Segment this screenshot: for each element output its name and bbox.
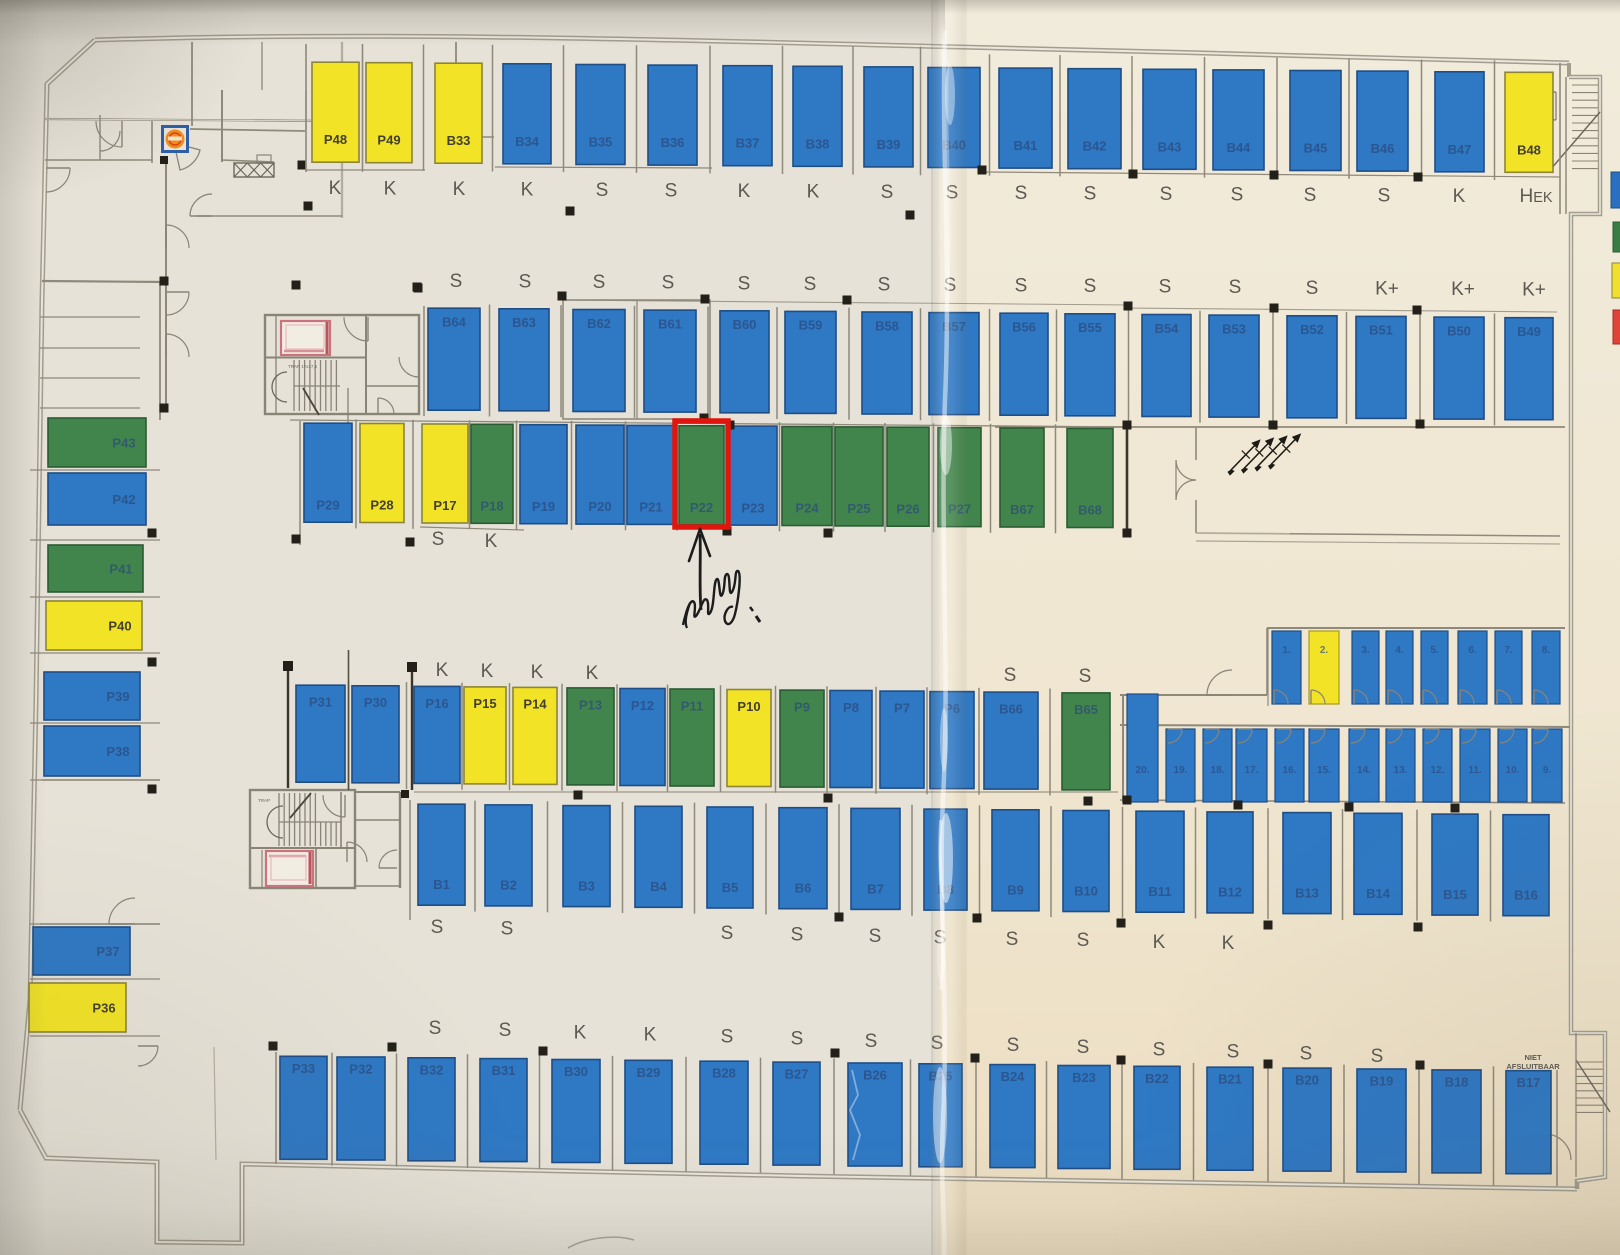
svg-text:B49: B49 xyxy=(1517,324,1541,339)
svg-text:P31: P31 xyxy=(309,695,332,710)
svg-text:K: K xyxy=(481,661,494,682)
svg-text:P14: P14 xyxy=(523,697,547,712)
svg-text:B43: B43 xyxy=(1158,139,1182,154)
svg-text:P19: P19 xyxy=(532,499,555,514)
svg-text:P17: P17 xyxy=(433,498,456,513)
svg-text:B68: B68 xyxy=(1078,503,1102,518)
svg-text:B3: B3 xyxy=(578,879,595,894)
svg-text:S: S xyxy=(738,273,751,294)
svg-text:B48: B48 xyxy=(1517,142,1541,157)
svg-text:B6: B6 xyxy=(795,881,812,896)
svg-text:K: K xyxy=(521,179,534,200)
svg-text:S: S xyxy=(1006,929,1019,950)
svg-text:S: S xyxy=(665,180,678,201)
svg-text:P22: P22 xyxy=(690,500,713,515)
svg-text:P8: P8 xyxy=(843,700,859,715)
svg-text:B34: B34 xyxy=(515,134,540,149)
svg-text:B61: B61 xyxy=(658,317,682,332)
svg-text:S: S xyxy=(662,273,675,294)
svg-text:S: S xyxy=(865,1031,878,1052)
svg-text:K: K xyxy=(436,660,449,681)
svg-text:B44: B44 xyxy=(1227,140,1252,155)
svg-text:B33: B33 xyxy=(447,133,471,148)
svg-text:P18: P18 xyxy=(480,498,503,513)
svg-text:P12: P12 xyxy=(631,698,654,713)
svg-text:B59: B59 xyxy=(799,318,823,333)
svg-text:B38: B38 xyxy=(806,136,830,151)
svg-text:P42: P42 xyxy=(112,492,135,507)
svg-text:B62: B62 xyxy=(587,316,611,331)
svg-text:K: K xyxy=(329,178,342,199)
svg-text:B37: B37 xyxy=(736,136,760,151)
svg-text:1.: 1. xyxy=(1282,645,1291,656)
svg-text:S: S xyxy=(519,272,532,293)
svg-text:P30: P30 xyxy=(364,695,387,710)
svg-text:B63: B63 xyxy=(512,315,536,330)
svg-text:S: S xyxy=(721,1027,734,1048)
svg-text:P9: P9 xyxy=(794,699,810,714)
svg-text:K: K xyxy=(384,178,397,199)
svg-text:B47: B47 xyxy=(1448,142,1472,157)
svg-text:P40: P40 xyxy=(108,619,131,634)
svg-text:6.: 6. xyxy=(1468,645,1477,656)
svg-text:S: S xyxy=(881,182,894,203)
svg-text:B64: B64 xyxy=(442,315,467,330)
svg-text:K: K xyxy=(807,181,820,202)
svg-text:B66: B66 xyxy=(999,702,1023,717)
svg-text:P48: P48 xyxy=(324,132,347,147)
svg-text:B41: B41 xyxy=(1014,138,1038,153)
svg-text:S: S xyxy=(1084,276,1097,297)
svg-text:TRAP 17x17,5: TRAP 17x17,5 xyxy=(288,364,318,369)
svg-text:S: S xyxy=(1007,1035,1020,1056)
svg-text:B58: B58 xyxy=(875,318,899,333)
svg-text:8.: 8. xyxy=(1542,645,1551,656)
svg-text:P15: P15 xyxy=(473,696,496,711)
svg-text:S: S xyxy=(791,924,804,945)
svg-text:B65: B65 xyxy=(1074,702,1098,717)
svg-text:B36: B36 xyxy=(661,135,685,150)
svg-text:P11: P11 xyxy=(681,698,703,713)
svg-text:B23: B23 xyxy=(1072,1070,1096,1085)
svg-text:3.: 3. xyxy=(1361,645,1370,656)
svg-text:K: K xyxy=(531,662,544,683)
svg-text:HEK: HEK xyxy=(1519,186,1552,207)
svg-text:S: S xyxy=(432,529,445,550)
svg-text:B9: B9 xyxy=(1007,883,1024,898)
svg-text:S: S xyxy=(1015,183,1028,204)
svg-text:B28: B28 xyxy=(712,1066,736,1081)
svg-text:S: S xyxy=(1306,278,1319,299)
svg-text:P16: P16 xyxy=(425,696,448,711)
svg-text:P39: P39 xyxy=(106,689,129,704)
svg-text:S: S xyxy=(1077,1037,1090,1058)
svg-text:B67: B67 xyxy=(1010,502,1034,517)
svg-text:B54: B54 xyxy=(1155,321,1180,336)
svg-text:B7: B7 xyxy=(867,881,884,896)
svg-text:S: S xyxy=(878,274,891,295)
svg-text:P24: P24 xyxy=(795,501,819,516)
svg-text:S: S xyxy=(1004,665,1017,686)
svg-text:B42: B42 xyxy=(1083,139,1107,154)
svg-text:B29: B29 xyxy=(637,1065,661,1080)
svg-text:P25: P25 xyxy=(847,501,870,516)
svg-text:5.: 5. xyxy=(1430,645,1439,656)
svg-text:B35: B35 xyxy=(589,135,613,150)
svg-text:S: S xyxy=(721,923,734,944)
svg-text:B4: B4 xyxy=(650,879,667,894)
svg-text:B26: B26 xyxy=(863,1068,887,1083)
svg-text:S: S xyxy=(1231,184,1244,205)
svg-text:7.: 7. xyxy=(1504,645,1513,656)
svg-text:P13: P13 xyxy=(579,697,602,712)
svg-text:K: K xyxy=(485,531,498,552)
svg-text:B50: B50 xyxy=(1447,323,1471,338)
svg-text:B56: B56 xyxy=(1012,320,1036,335)
svg-text:B46: B46 xyxy=(1371,141,1395,156)
svg-text:P21: P21 xyxy=(639,500,662,515)
svg-text:S: S xyxy=(791,1029,804,1050)
svg-text:K: K xyxy=(453,179,466,200)
svg-text:S: S xyxy=(1229,277,1242,298)
svg-text:B24: B24 xyxy=(1001,1069,1026,1084)
svg-text:S: S xyxy=(1378,185,1391,206)
svg-text:P20: P20 xyxy=(588,499,611,514)
svg-text:P23: P23 xyxy=(741,500,764,515)
svg-text:B5: B5 xyxy=(722,880,739,895)
svg-text:P43: P43 xyxy=(112,436,135,451)
svg-text:K+: K+ xyxy=(1375,278,1399,299)
svg-text:P41: P41 xyxy=(109,562,132,577)
svg-text:S: S xyxy=(596,180,609,201)
svg-text:B10: B10 xyxy=(1074,883,1098,898)
svg-text:B27: B27 xyxy=(785,1067,809,1082)
svg-text:S: S xyxy=(1084,183,1097,204)
svg-text:P29: P29 xyxy=(316,497,339,512)
svg-text:B51: B51 xyxy=(1369,323,1393,338)
svg-text:S: S xyxy=(1159,277,1172,298)
svg-text:P28: P28 xyxy=(370,498,393,513)
svg-text:P7: P7 xyxy=(894,700,910,715)
svg-text:B60: B60 xyxy=(733,317,757,332)
svg-text:B30: B30 xyxy=(564,1064,588,1079)
svg-text:S: S xyxy=(1304,185,1317,206)
svg-text:K: K xyxy=(738,181,751,202)
svg-text:S: S xyxy=(1015,276,1028,297)
svg-text:P38: P38 xyxy=(106,744,129,759)
svg-text:S: S xyxy=(1077,930,1090,951)
svg-text:2.: 2. xyxy=(1320,645,1329,656)
svg-text:P26: P26 xyxy=(896,501,919,516)
svg-text:S: S xyxy=(450,271,463,292)
svg-text:B39: B39 xyxy=(877,137,901,152)
svg-text:S: S xyxy=(869,926,882,947)
svg-text:S: S xyxy=(593,272,606,293)
svg-text:S: S xyxy=(804,274,817,295)
svg-text:P49: P49 xyxy=(377,133,400,148)
svg-text:K: K xyxy=(574,1022,587,1043)
svg-text:K: K xyxy=(1453,186,1466,207)
svg-text:B53: B53 xyxy=(1222,322,1246,337)
svg-text:B55: B55 xyxy=(1078,320,1102,335)
svg-text:B45: B45 xyxy=(1304,141,1328,156)
svg-text:P10: P10 xyxy=(737,699,760,714)
svg-text:4.: 4. xyxy=(1395,645,1404,656)
svg-text:S: S xyxy=(1079,666,1092,687)
svg-text:B52: B52 xyxy=(1300,322,1324,337)
svg-text:K: K xyxy=(586,663,599,684)
svg-text:K+: K+ xyxy=(1522,280,1546,301)
svg-text:S: S xyxy=(1160,184,1173,205)
svg-text:K+: K+ xyxy=(1451,279,1475,300)
svg-text:K: K xyxy=(644,1024,657,1045)
